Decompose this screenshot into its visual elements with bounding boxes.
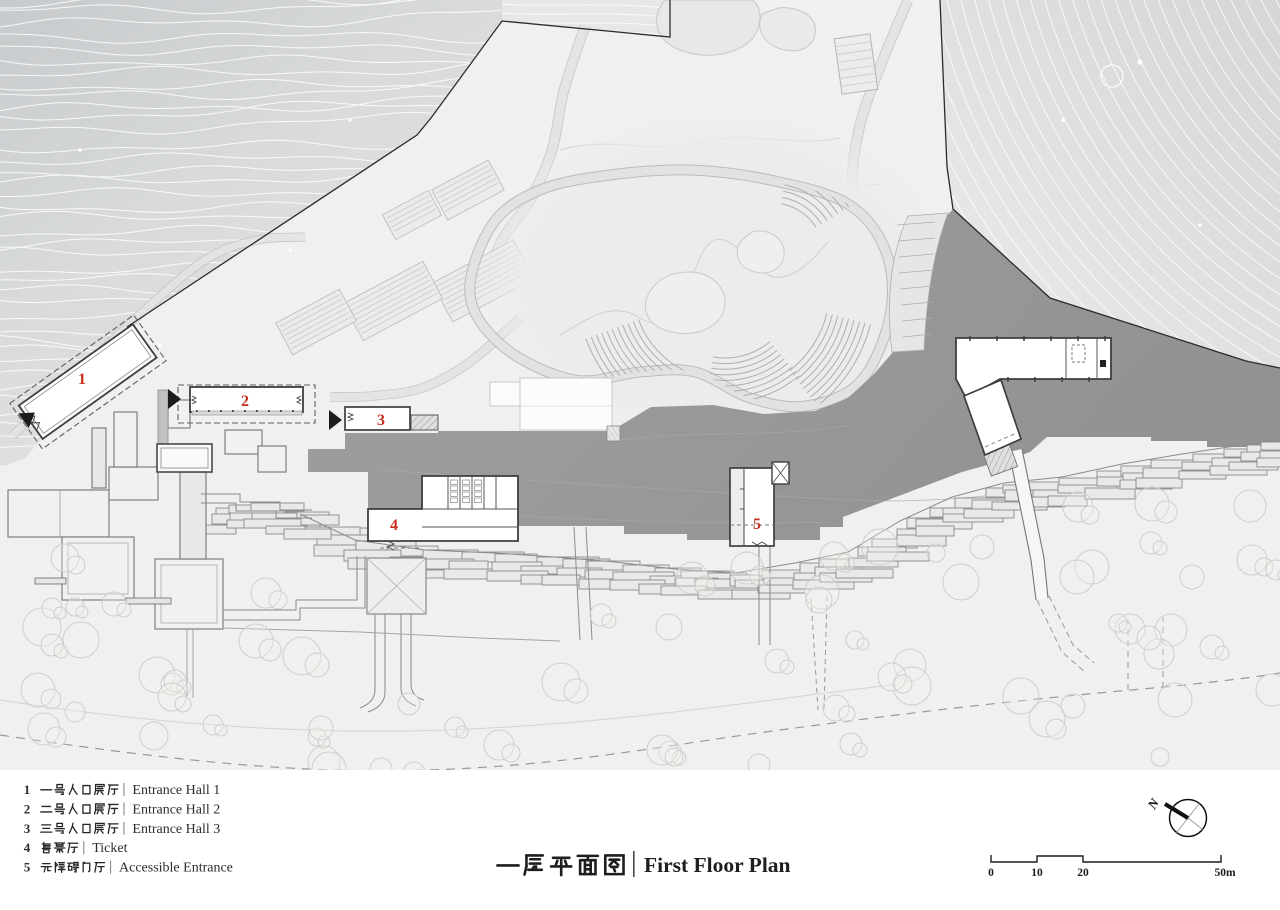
svg-text:10: 10: [1031, 867, 1043, 879]
svg-text:2: 2: [24, 801, 31, 816]
svg-text:Entrance Hall 1: Entrance Hall 1: [132, 783, 220, 798]
svg-text:3: 3: [377, 412, 385, 429]
svg-text:2: 2: [241, 393, 249, 410]
svg-text:Entrance Hall 3: Entrance Hall 3: [132, 822, 220, 837]
svg-text:Ticket: Ticket: [92, 841, 127, 856]
svg-text:Accessible Entrance: Accessible Entrance: [119, 861, 233, 876]
svg-text:20: 20: [1077, 867, 1089, 879]
svg-text:First Floor Plan: First Floor Plan: [644, 853, 791, 877]
svg-text:1: 1: [78, 371, 86, 388]
svg-text:50m: 50m: [1214, 867, 1236, 879]
svg-text:0: 0: [988, 867, 994, 879]
svg-text:5: 5: [753, 516, 761, 533]
svg-text:5: 5: [24, 860, 31, 875]
svg-text:3: 3: [24, 821, 31, 836]
svg-text:4: 4: [390, 517, 398, 534]
svg-text:1: 1: [24, 782, 31, 797]
svg-text:4: 4: [24, 840, 31, 855]
svg-text:Entrance Hall 2: Entrance Hall 2: [132, 802, 220, 817]
